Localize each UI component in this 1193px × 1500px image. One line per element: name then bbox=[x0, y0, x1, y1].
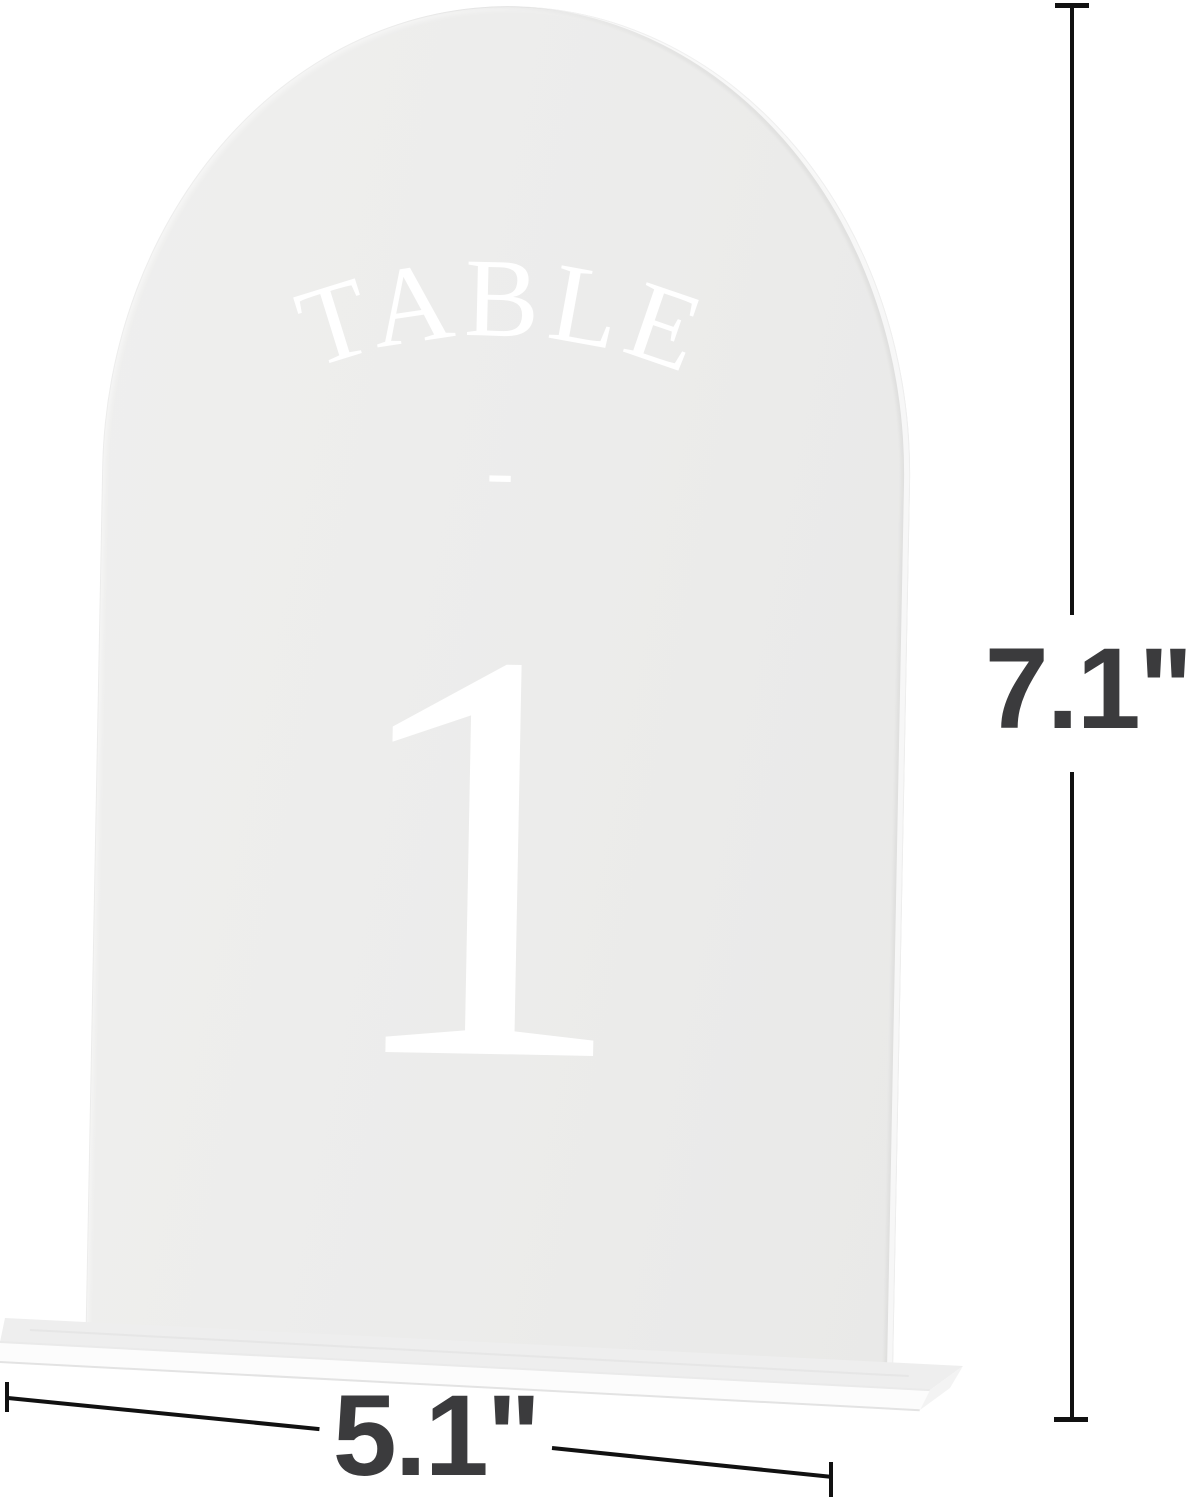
sign-panel: TABLE - 1 bbox=[85, 0, 919, 1374]
sign-number: 1 bbox=[331, 525, 639, 1185]
height-dim-label: 7.1" bbox=[982, 632, 1193, 747]
sign-divider-dash: - bbox=[486, 425, 515, 517]
product-dimension-image: TABLE - 1 7.1" 5.1" bbox=[0, 0, 1193, 1500]
height-dim-line-lower bbox=[1070, 772, 1074, 1420]
sign-panel-artwork: TABLE - 1 bbox=[85, 0, 919, 1374]
width-dim-line-right bbox=[552, 1446, 832, 1479]
width-dim-right-tick bbox=[829, 1462, 833, 1497]
width-dim-label: 5.1" bbox=[330, 1379, 542, 1494]
height-dim-line-upper bbox=[1070, 6, 1074, 615]
width-dim-line-left bbox=[8, 1396, 320, 1431]
height-dim-bottom-tick bbox=[1054, 1417, 1088, 1422]
sign-arc-text: TABLE bbox=[281, 232, 724, 399]
